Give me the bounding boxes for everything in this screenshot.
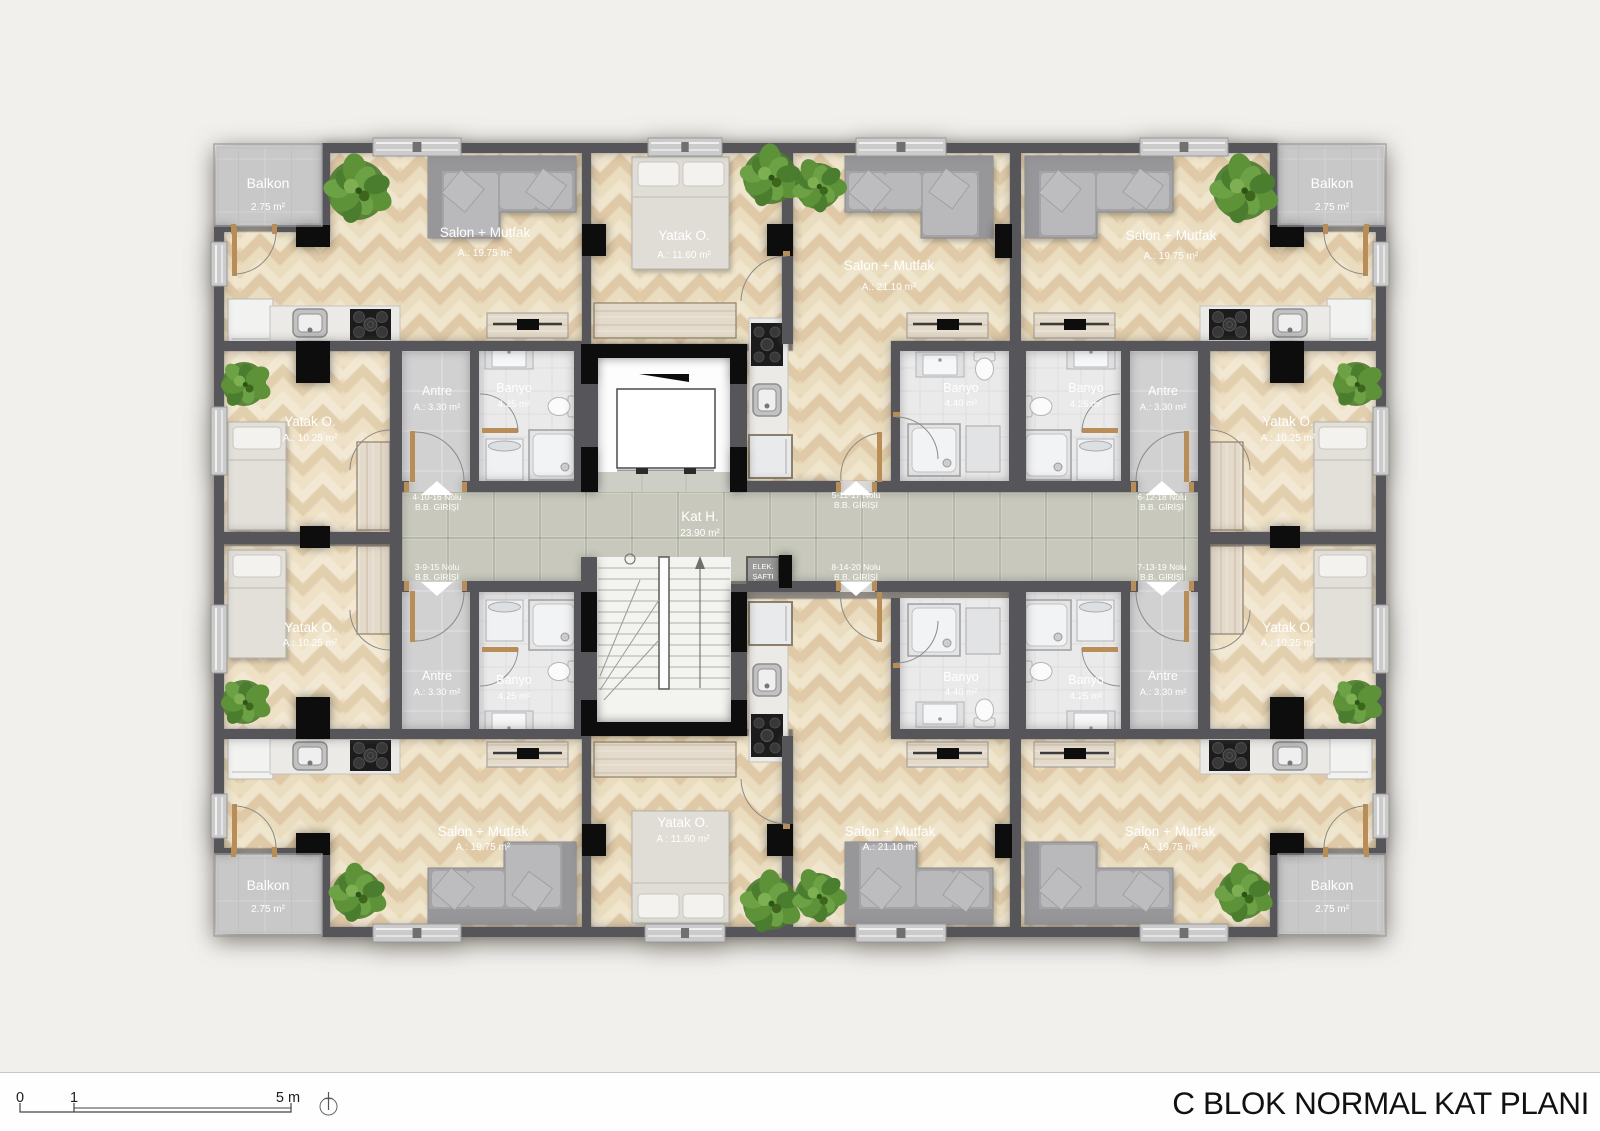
svg-text:4.25 m²: 4.25 m² [1070,399,1102,410]
svg-text:ELEK.: ELEK. [752,562,773,571]
svg-text:4.25 m²: 4.25 m² [1070,691,1102,702]
svg-text:A.: 3.30 m²: A.: 3.30 m² [1140,402,1186,413]
svg-text:A.: 10.25 m²: A.: 10.25 m² [1261,638,1316,649]
svg-text:Salon + Mutfak: Salon + Mutfak [1125,824,1216,839]
svg-text:Yatak O.: Yatak O. [284,414,336,429]
svg-text:Banyo: Banyo [496,381,531,395]
svg-text:Yatak O.: Yatak O. [284,620,336,635]
svg-text:Balkon: Balkon [1311,877,1354,893]
svg-text:23.90 m²: 23.90 m² [680,528,720,539]
svg-text:A.: 10.25 m²: A.: 10.25 m² [1261,433,1316,444]
svg-text:A.: 3.30 m²: A.: 3.30 m² [414,687,460,698]
svg-text:A.: 19.75 m²: A.: 19.75 m² [456,842,511,853]
svg-text:A.: 11.60 m²: A.: 11.60 m² [657,250,711,261]
svg-text:3-9-15 Nolu: 3-9-15 Nolu [415,562,460,572]
svg-text:Yatak O.: Yatak O. [1262,620,1314,635]
svg-text:4.25 m²: 4.25 m² [498,399,530,410]
svg-text:B.B. GİRİŞİ: B.B. GİRİŞİ [415,572,459,582]
svg-text:A.: 10.25 m²: A.: 10.25 m² [283,638,338,649]
svg-text:A.: 19.75 m²: A.: 19.75 m² [458,248,513,259]
svg-text:Salon + Mutfak: Salon + Mutfak [844,258,935,273]
svg-text:2.75 m²: 2.75 m² [1315,904,1350,915]
svg-text:5-11-17 Nolu: 5-11-17 Nolu [832,490,881,500]
svg-text:A : 11.60 m²: A : 11.60 m² [656,834,710,845]
svg-text:Antre: Antre [1148,384,1178,398]
svg-text:A.: 21.10 m²: A.: 21.10 m² [862,282,917,293]
svg-text:Antre: Antre [422,384,452,398]
svg-text:Banyo: Banyo [943,670,978,684]
svg-text:A.: 19.75 m²: A.: 19.75 m² [1144,251,1199,262]
svg-text:Banyo: Banyo [1068,381,1103,395]
svg-text:Balkon: Balkon [247,175,290,191]
svg-text:2.75 m²: 2.75 m² [251,904,286,915]
svg-text:Salon + Mutfak: Salon + Mutfak [438,824,529,839]
svg-text:Salon + Mutfak: Salon + Mutfak [440,225,531,240]
svg-text:4.25 m²: 4.25 m² [498,691,530,702]
svg-text:Kat H.: Kat H. [681,509,719,524]
svg-text:5 m: 5 m [276,1090,300,1106]
svg-text:A.: 21.10 m²: A.: 21.10 m² [863,842,918,853]
svg-text:A.: 19.75 m²: A.: 19.75 m² [1143,842,1198,853]
svg-text:Antre: Antre [1148,669,1178,683]
svg-text:Banyo: Banyo [943,381,978,395]
svg-text:Banyo: Banyo [1068,673,1103,687]
svg-text:B.B. GİRİŞİ: B.B. GİRİŞİ [834,572,878,582]
svg-text:Yatak O.: Yatak O. [657,815,709,830]
svg-text:Banyo: Banyo [496,673,531,687]
svg-text:B.B. GİRİŞİ: B.B. GİRİŞİ [415,502,459,512]
svg-text:B.B. GİRİŞİ: B.B. GİRİŞİ [1140,572,1184,582]
svg-text:6-12-18 Nolu: 6-12-18 Nolu [1137,492,1186,502]
svg-text:4.40 m²: 4.40 m² [945,687,977,698]
svg-text:ŞAFTI: ŞAFTI [752,572,773,581]
svg-text:0: 0 [16,1090,24,1106]
svg-text:2.75 m²: 2.75 m² [251,202,286,213]
svg-text:Balkon: Balkon [247,877,290,893]
svg-text:Balkon: Balkon [1311,175,1354,191]
svg-text:C BLOK NORMAL KAT PLANI: C BLOK NORMAL KAT PLANI [1172,1085,1589,1121]
svg-text:7-13-19 Nolu: 7-13-19 Nolu [1137,562,1186,572]
svg-text:Yatak O.: Yatak O. [1262,414,1314,429]
svg-text:4.40 m²: 4.40 m² [945,398,977,409]
svg-text:Yatak O.: Yatak O. [658,228,710,243]
svg-text:B.B. GİRİŞİ: B.B. GİRİŞİ [1140,502,1184,512]
svg-text:A.: 3.30 m²: A.: 3.30 m² [1140,687,1186,698]
svg-text:1: 1 [70,1090,78,1106]
svg-text:A.: 10.25 m²: A.: 10.25 m² [283,433,338,444]
svg-text:A.: 3.30 m²: A.: 3.30 m² [414,402,460,413]
svg-text:Salon + Mutfak: Salon + Mutfak [1126,228,1217,243]
svg-text:B.B. GİRİŞİ: B.B. GİRİŞİ [834,500,878,510]
svg-text:Salon + Mutfak: Salon + Mutfak [845,824,936,839]
svg-text:Antre: Antre [422,669,452,683]
svg-text:4-10-16 Nolu: 4-10-16 Nolu [412,492,461,502]
svg-text:2.75 m²: 2.75 m² [1315,202,1350,213]
svg-text:8-14-20 Nolu: 8-14-20 Nolu [831,562,880,572]
